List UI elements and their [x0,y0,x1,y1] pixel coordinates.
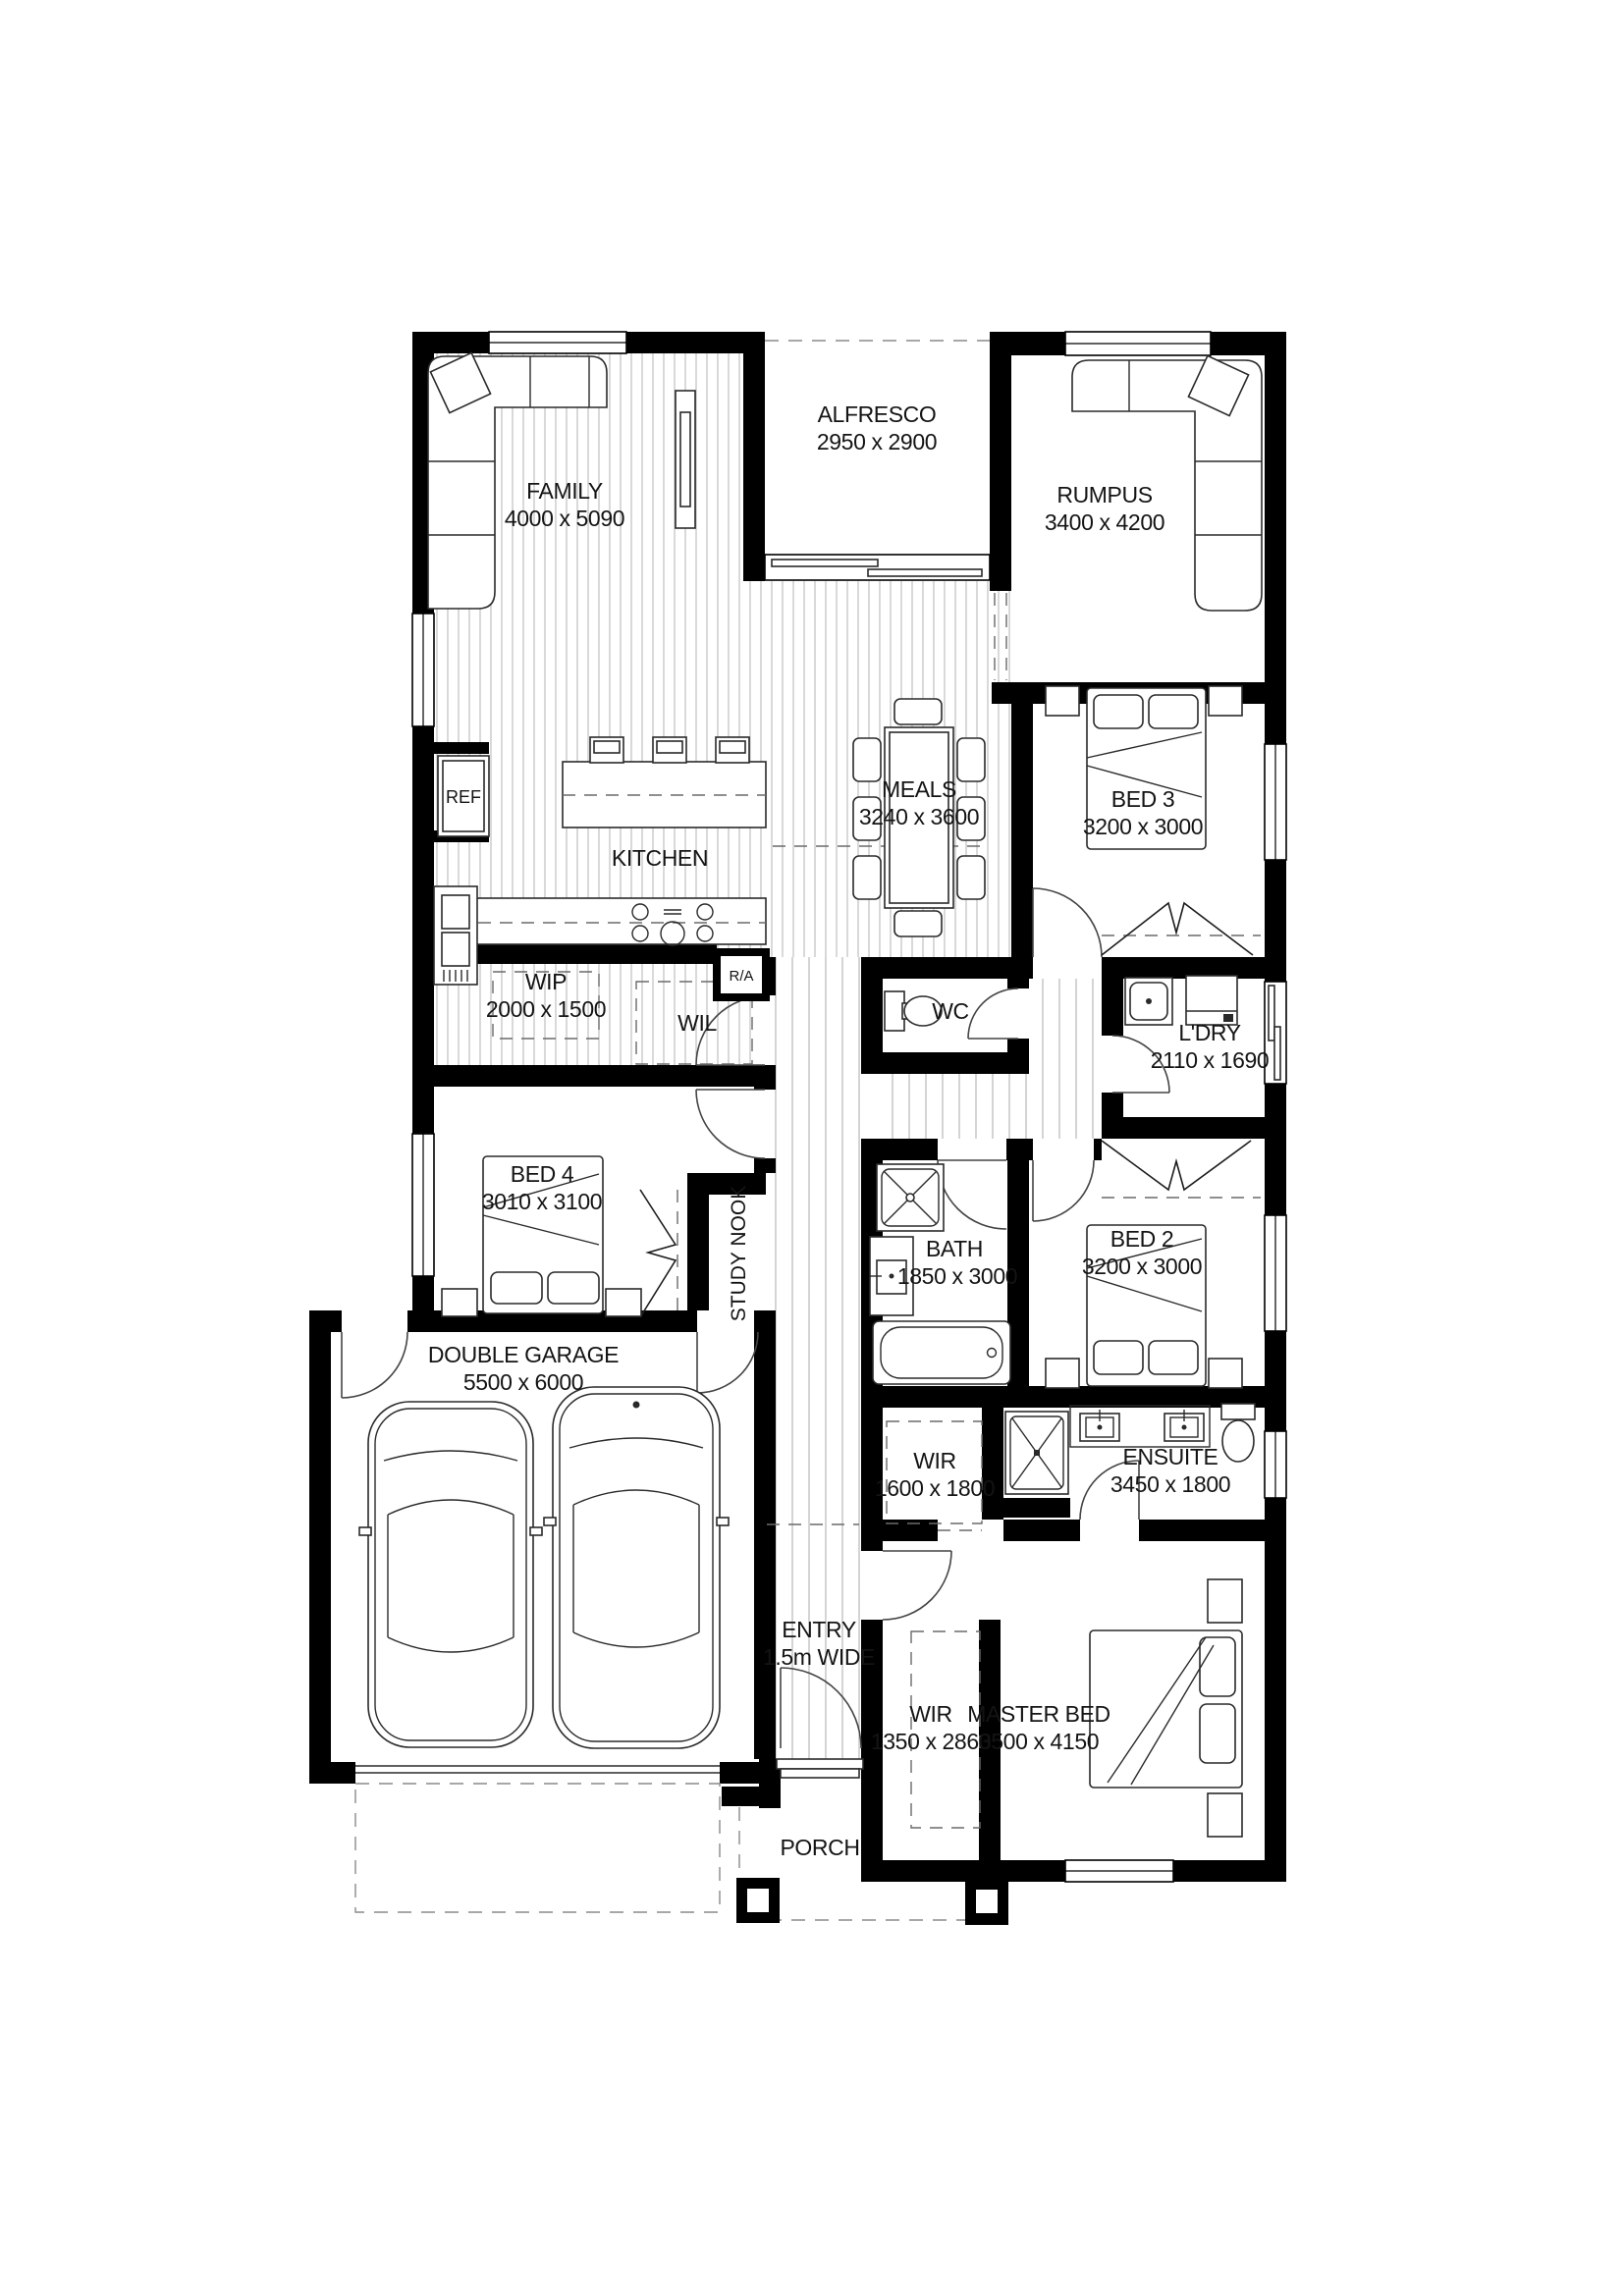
entry-dims: 1.5m WIDE [763,1644,875,1670]
kitchen-island [563,737,766,828]
garage-side-door [342,1332,407,1398]
garage-internal-door [697,1332,758,1393]
floor-plan-page: FAMILY 4000 x 5090 ALFRESCO 2950 x 2900 … [0,0,1624,2296]
bed4-robe-bifold [640,1190,676,1317]
wip-label: WIP [525,969,567,994]
driveway-apron [355,1784,720,1912]
alfresco-dims: 2950 x 2900 [817,429,937,454]
master-bed-label: MASTER BED [967,1701,1110,1727]
laundry-tub [1125,978,1172,1025]
bed2-window-right [1265,1215,1286,1331]
car-2 [544,1387,729,1748]
laundry-label: L'DRY [1178,1020,1240,1045]
meals-dims: 3240 x 3600 [859,804,979,829]
ensuite-toilet [1221,1404,1255,1462]
bed2-dims: 3200 x 3000 [1082,1254,1202,1279]
bed2-door [1033,1160,1094,1221]
master-door [883,1551,951,1620]
master-bed-dims: 3500 x 4150 [979,1729,1099,1754]
family-window-left [412,614,434,726]
bed4-window-left [412,1134,434,1276]
bed4-door [696,1090,765,1158]
laundry-dims: 2110 x 1690 [1151,1047,1270,1073]
alfresco-label: ALFRESCO [818,401,937,427]
wc-door [968,988,1018,1039]
floor-plan-drawing: FAMILY 4000 x 5090 ALFRESCO 2950 x 2900 … [0,0,1624,2296]
entry-label: ENTRY [782,1617,856,1642]
ensuite-dims: 3450 x 1800 [1110,1471,1230,1497]
rumpus-label: RUMPUS [1056,482,1152,507]
kitchen-sink-unit [434,886,477,985]
family-dims: 4000 x 5090 [505,506,624,531]
fridge-label: REF [446,787,481,807]
bath-dims: 1850 x 3000 [897,1263,1017,1289]
car-1 [359,1402,542,1747]
kitchen-bench [457,898,766,945]
ensuite-label: ENSUITE [1123,1444,1218,1469]
wc-label: WC [932,998,969,1024]
bed4-dims: 3010 x 3100 [482,1189,602,1214]
ensuite-window-right [1265,1431,1286,1498]
bed2-label: BED 2 [1110,1226,1173,1252]
bed3-door [1033,888,1102,957]
garage-label: DOUBLE GARAGE [428,1342,619,1367]
family-label: FAMILY [526,478,603,504]
bath-label: BATH [926,1236,983,1261]
wir-minor-label: WIR [913,1448,956,1473]
return-air-label: R/A [729,968,753,985]
meals-label: MEALS [882,776,956,802]
bed3-robe-bifold [1102,903,1253,955]
study-nook-label: STUDY NOOK [728,1186,750,1321]
bed3-label: BED 3 [1111,786,1174,812]
bathtub [873,1321,1010,1384]
corner-pier [965,1878,1008,1925]
porch-post [736,1878,780,1923]
garage-dims: 5500 x 6000 [463,1369,583,1395]
family-window-top [489,332,626,353]
wir-master-label: WIR [909,1701,952,1727]
rumpus-dims: 3400 x 4200 [1045,509,1164,535]
bed3-dims: 3200 x 3000 [1083,814,1203,839]
ensuite-shower [1005,1412,1068,1494]
bath-shower [877,1164,944,1231]
bed3-window-right [1265,744,1286,860]
wir-minor-dims: 1600 x 1800 [875,1475,995,1501]
bed2-robe-bifold [1102,1141,1251,1190]
bed4-label: BED 4 [511,1161,574,1187]
washing-machine [1186,976,1237,1025]
alfresco-sliding-door [765,555,990,580]
wip-dims: 2000 x 1500 [486,996,606,1022]
rumpus-window-top [1065,332,1211,355]
master-window-bottom [1065,1860,1173,1882]
wir-master-dims: 1350 x 2860 [871,1729,991,1754]
master-bed-furniture [1090,1579,1242,1837]
kitchen-label: KITCHEN [612,845,708,871]
entry-steps [777,1759,863,1778]
wil-label: WIL [677,1010,717,1036]
porch-label: PORCH [780,1835,859,1860]
bath-door [938,1160,1006,1229]
ensuite-vanity [1070,1406,1210,1447]
family-tv-unit [676,391,695,528]
